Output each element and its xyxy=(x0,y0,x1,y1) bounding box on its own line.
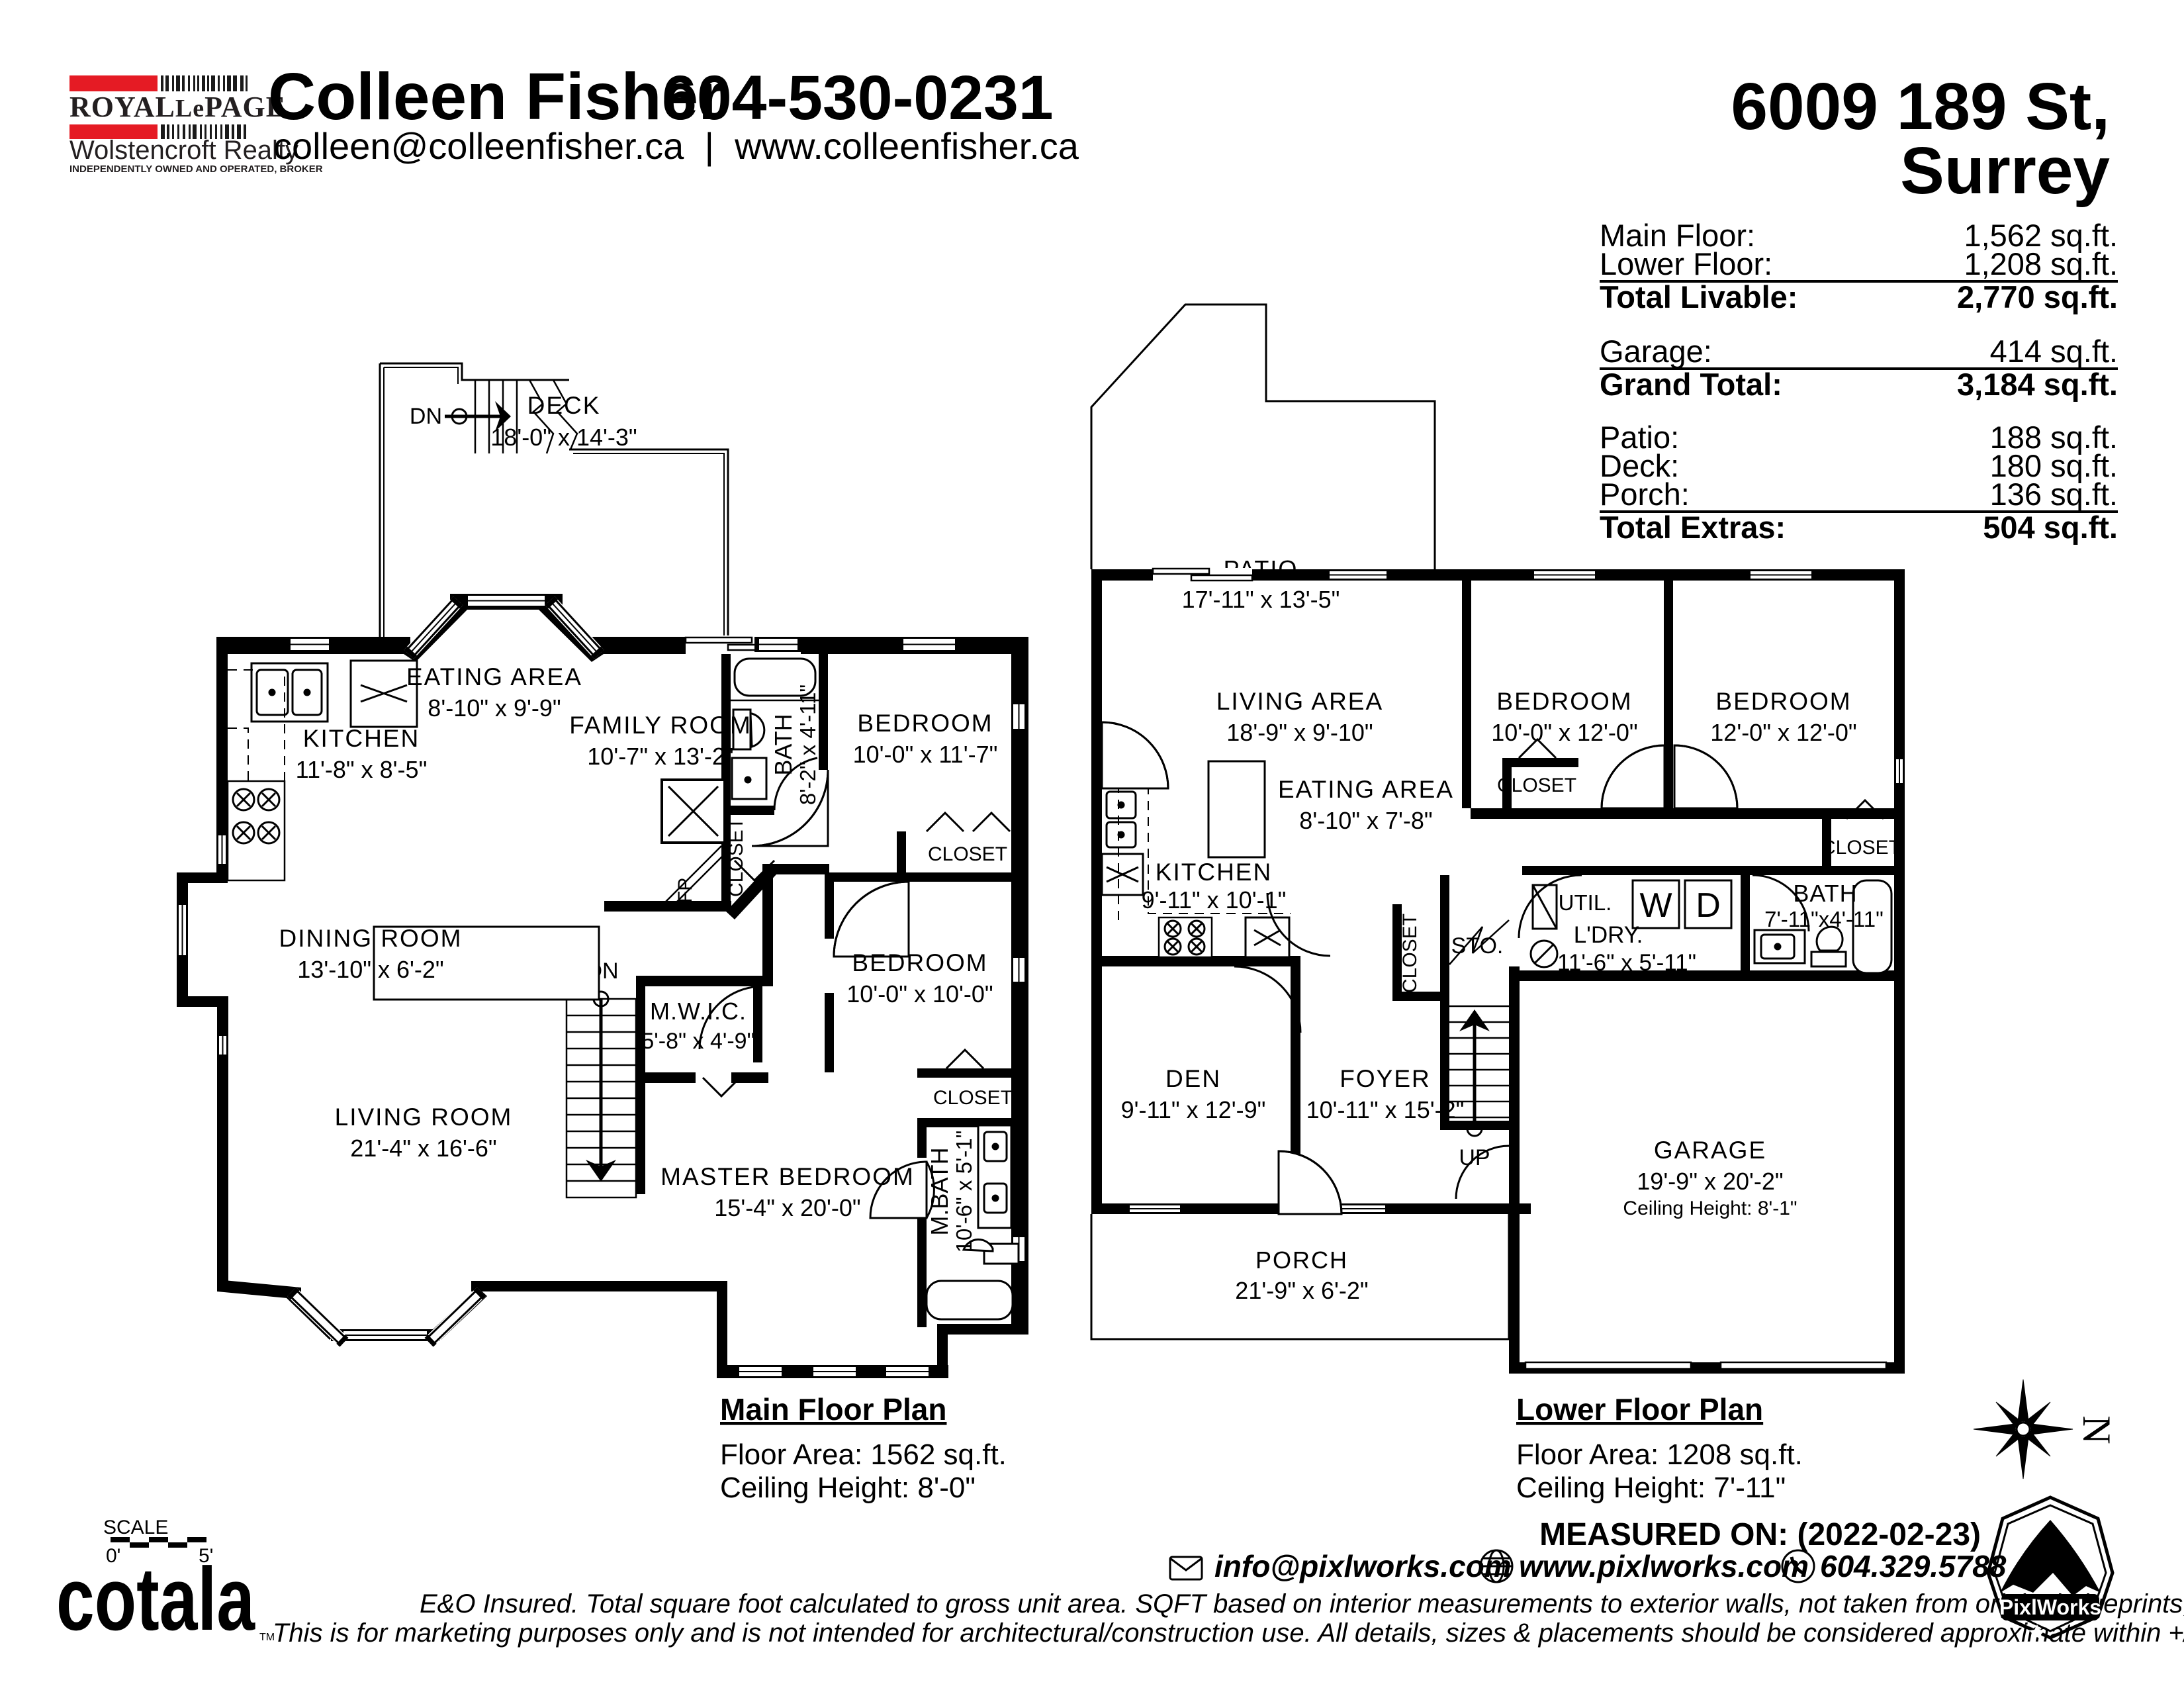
svg-text:21'-4" x 16'-6": 21'-4" x 16'-6" xyxy=(350,1135,496,1162)
svg-text:colleen@colleenfisher.ca | w: colleen@colleenfisher.ca | www.colleenfi… xyxy=(273,125,1079,167)
svg-text:Surrey: Surrey xyxy=(1900,134,2110,208)
svg-text:12'-0" x 12'-0": 12'-0" x 12'-0" xyxy=(1710,719,1856,746)
svg-text:CLOSET: CLOSET xyxy=(1821,837,1901,859)
svg-text:info@pixlworks.com: info@pixlworks.com xyxy=(1214,1549,1512,1583)
svg-text:MEASURED ON: (2022-02-23): MEASURED ON: (2022-02-23) xyxy=(1539,1517,1981,1552)
svg-text:Floor Area: 1208 sq.ft.: Floor Area: 1208 sq.ft. xyxy=(1516,1438,1803,1471)
svg-text:10'-11" x 15'-2": 10'-11" x 15'-2" xyxy=(1306,1096,1465,1123)
svg-text:10'-0" x 11'-7": 10'-0" x 11'-7" xyxy=(853,741,998,768)
svg-text:8'-2" x 4'-11": 8'-2" x 4'-11" xyxy=(796,684,820,805)
svg-text:M.BATH: M.BATH xyxy=(926,1147,953,1235)
svg-text:Lower Floor Plan: Lower Floor Plan xyxy=(1516,1392,1763,1427)
svg-text:21'-9" x 6'-2": 21'-9" x 6'-2" xyxy=(1235,1277,1368,1304)
svg-text:STO.: STO. xyxy=(1451,933,1504,959)
svg-text:W: W xyxy=(1639,886,1672,925)
svg-text:cotala: cotala xyxy=(56,1549,255,1649)
svg-text:136 sq.ft.: 136 sq.ft. xyxy=(1990,477,2118,512)
svg-text:18'-0" x 14'-3": 18'-0" x 14'-3" xyxy=(490,424,637,451)
svg-text:15'-4" x 20'-0": 15'-4" x 20'-0" xyxy=(714,1194,860,1221)
svg-text:EATING AREA: EATING AREA xyxy=(1278,776,1454,803)
svg-text:Ceiling Height: 8'-0": Ceiling Height: 8'-0" xyxy=(720,1472,976,1504)
svg-text:CLOSET: CLOSET xyxy=(928,843,1007,865)
svg-text:604.329.5788: 604.329.5788 xyxy=(1820,1549,2007,1583)
svg-text:CLOSET: CLOSET xyxy=(1497,774,1576,796)
svg-text:L'DRY.: L'DRY. xyxy=(1574,922,1643,948)
svg-text:DINING ROOM: DINING ROOM xyxy=(279,925,463,952)
svg-text:This is for marketing purposes: This is for marketing purposes only and … xyxy=(273,1618,2184,1648)
svg-text:FOYER: FOYER xyxy=(1340,1065,1430,1092)
svg-text:10'-6" x 5'-1": 10'-6" x 5'-1" xyxy=(952,1131,976,1253)
svg-text:19'-9" x 20'-2": 19'-9" x 20'-2" xyxy=(1637,1168,1783,1195)
svg-text:18'-9" x 9'-10": 18'-9" x 9'-10" xyxy=(1226,719,1373,746)
svg-text:1,208 sq.ft.: 1,208 sq.ft. xyxy=(1964,246,2118,281)
svg-text:Ceiling Height: 7'-11": Ceiling Height: 7'-11" xyxy=(1516,1472,1786,1504)
svg-text:9'-11" x 10'-1": 9'-11" x 10'-1" xyxy=(1142,886,1287,914)
svg-text:Total Livable:: Total Livable: xyxy=(1600,279,1797,314)
svg-text:PORCH: PORCH xyxy=(1255,1246,1348,1274)
svg-text:Lower Floor:: Lower Floor: xyxy=(1600,246,1772,281)
svg-text:3,184 sq.ft.: 3,184 sq.ft. xyxy=(1957,367,2118,402)
svg-text:M.W.I.C.: M.W.I.C. xyxy=(650,998,747,1025)
svg-text:GARAGE: GARAGE xyxy=(1654,1137,1766,1164)
svg-text:www.pixlworks.com: www.pixlworks.com xyxy=(1519,1549,1809,1583)
svg-text:PixlWorks: PixlWorks xyxy=(1999,1595,2101,1619)
svg-text:7'-11"x4'-11": 7'-11"x4'-11" xyxy=(1764,907,1884,931)
svg-text:SCALE: SCALE xyxy=(103,1517,168,1538)
svg-text:Porch:: Porch: xyxy=(1600,477,1690,512)
svg-text:DECK: DECK xyxy=(527,392,601,419)
svg-text:CLOSET: CLOSET xyxy=(1399,914,1421,993)
svg-text:Total Extras:: Total Extras: xyxy=(1600,510,1786,545)
svg-text:10'-0" x 10'-0": 10'-0" x 10'-0" xyxy=(846,980,993,1008)
svg-text:11'-6" x 5'-11": 11'-6" x 5'-11" xyxy=(1557,950,1696,976)
svg-text:ROYALLePAGE: ROYALLePAGE xyxy=(69,91,286,123)
svg-text:504 sq.ft.: 504 sq.ft. xyxy=(1983,510,2118,545)
svg-text:BATH: BATH xyxy=(770,714,797,775)
svg-text:BATH: BATH xyxy=(1793,880,1857,907)
svg-text:FAMILY ROOM: FAMILY ROOM xyxy=(569,712,752,739)
svg-text:8'-10" x 9'-9": 8'-10" x 9'-9" xyxy=(428,694,561,722)
svg-text:5'-8" x 4'-9": 5'-8" x 4'-9" xyxy=(641,1029,754,1054)
svg-text:BEDROOM: BEDROOM xyxy=(852,949,987,976)
svg-text:LIVING ROOM: LIVING ROOM xyxy=(335,1103,513,1131)
svg-text:11'-8" x 8'-5": 11'-8" x 8'-5" xyxy=(296,756,428,783)
svg-text:Floor Area: 1562 sq.ft.: Floor Area: 1562 sq.ft. xyxy=(720,1438,1007,1471)
svg-text:UTIL.: UTIL. xyxy=(1559,890,1612,915)
svg-text:D: D xyxy=(1696,886,1721,925)
svg-text:FP: FP xyxy=(674,878,696,903)
svg-text:10'-0" x 12'-0": 10'-0" x 12'-0" xyxy=(1491,719,1637,746)
svg-text:6009 189 St,: 6009 189 St, xyxy=(1731,70,2110,144)
svg-text:LIVING AREA: LIVING AREA xyxy=(1216,688,1383,715)
svg-text:13'-10" x 6'-2": 13'-10" x 6'-2" xyxy=(297,956,443,983)
svg-text:CLOSET: CLOSET xyxy=(933,1087,1013,1109)
svg-text:DN: DN xyxy=(410,404,442,429)
svg-text:BEDROOM: BEDROOM xyxy=(1496,688,1632,715)
svg-text:KITCHEN: KITCHEN xyxy=(303,725,420,752)
svg-text:Colleen Fisher: Colleen Fisher xyxy=(268,60,724,134)
svg-text:MASTER BEDROOM: MASTER BEDROOM xyxy=(660,1163,915,1190)
svg-text:604-530-0231: 604-530-0231 xyxy=(662,63,1054,133)
svg-text:BEDROOM: BEDROOM xyxy=(857,710,993,737)
svg-text:9'-11" x 12'-9": 9'-11" x 12'-9" xyxy=(1121,1096,1266,1123)
svg-text:Ceiling Height: 8'-1": Ceiling Height: 8'-1" xyxy=(1623,1197,1797,1219)
svg-text:414 sq.ft.: 414 sq.ft. xyxy=(1990,334,2118,369)
svg-text:BEDROOM: BEDROOM xyxy=(1715,688,1851,715)
svg-text:Garage:: Garage: xyxy=(1600,334,1712,369)
svg-text:DEN: DEN xyxy=(1165,1065,1221,1092)
svg-text:N: N xyxy=(2075,1415,2118,1444)
svg-text:CLOSET: CLOSET xyxy=(725,818,747,897)
svg-text:E&O Insured. Total square foo: E&O Insured. Total square foot calculate… xyxy=(420,1589,2184,1618)
svg-text:10'-7" x 13'-2": 10'-7" x 13'-2" xyxy=(587,743,733,770)
svg-text:Main Floor Plan: Main Floor Plan xyxy=(720,1392,946,1427)
svg-text:EATING AREA: EATING AREA xyxy=(406,663,582,690)
svg-text:17'-11" x 13'-5": 17'-11" x 13'-5" xyxy=(1182,586,1340,613)
svg-text:2,770 sq.ft.: 2,770 sq.ft. xyxy=(1957,279,2118,314)
svg-text:8'-10" x 7'-8": 8'-10" x 7'-8" xyxy=(1299,807,1432,834)
svg-text:Wolstencroft Realty: Wolstencroft Realty xyxy=(69,136,298,165)
svg-text:KITCHEN: KITCHEN xyxy=(1156,859,1272,886)
svg-text:Grand Total:: Grand Total: xyxy=(1600,367,1782,402)
